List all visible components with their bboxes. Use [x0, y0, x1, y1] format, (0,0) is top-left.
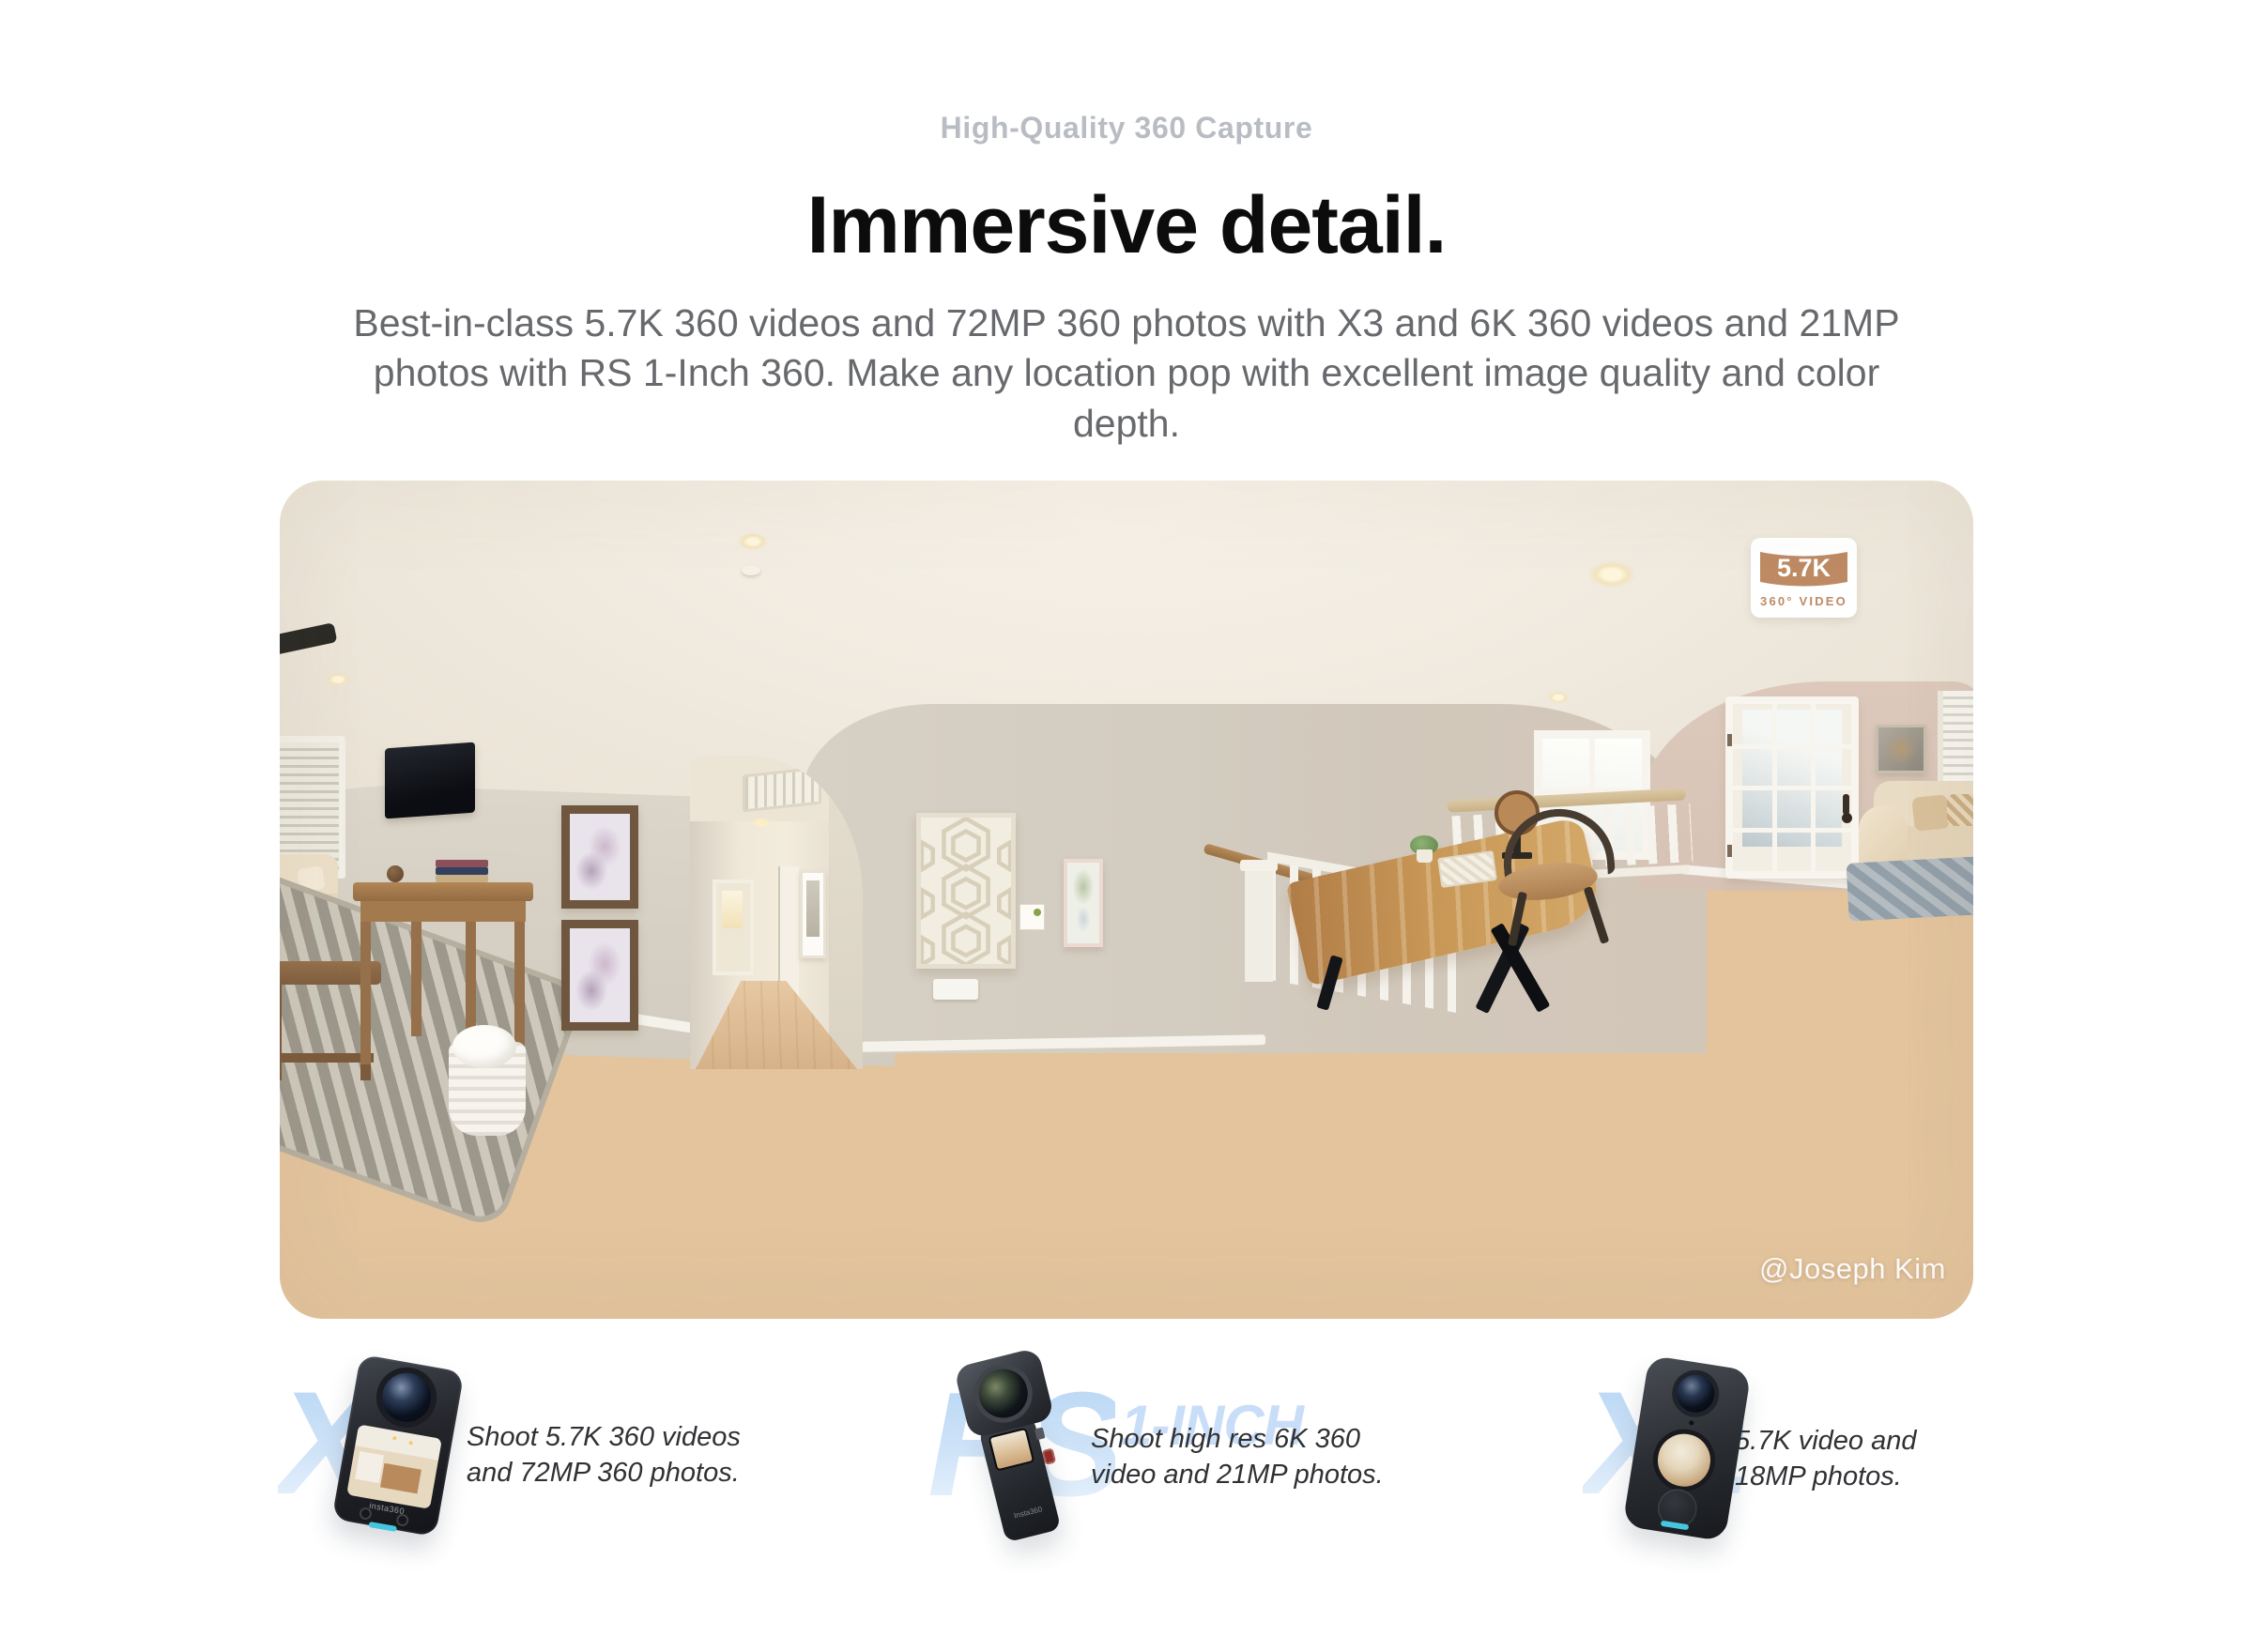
badge-type-label: 360° VIDEO	[1760, 594, 1847, 608]
badge-resolution-text: 5.7K	[1777, 554, 1832, 582]
decor-orb	[387, 865, 404, 882]
product-rs-description: Shoot high res 6K 360 video and 21MP pho…	[1091, 1421, 1419, 1493]
window-blinds	[280, 742, 339, 872]
light-switch-plate	[933, 979, 978, 1000]
screen-preview	[355, 1451, 384, 1483]
hallway	[690, 756, 863, 1069]
record-button	[1042, 1448, 1057, 1465]
blanket-basket	[449, 1042, 526, 1136]
far-room-window	[722, 891, 743, 928]
door-glass	[1742, 710, 1842, 847]
screen-preview	[380, 1463, 421, 1494]
hallway-side-wall	[829, 784, 863, 1069]
sofa-pillow	[1947, 794, 1973, 826]
resolution-badge: 5.7K 360° VIDEO	[1751, 538, 1857, 618]
product-rs-1-inch: RS 1-INCH Insta360 Shoot high res 6K 360…	[920, 1342, 1446, 1624]
eyebrow-label: High-Quality 360 Capture	[0, 111, 2253, 145]
photo-credit: @Joseph Kim	[1759, 1252, 1946, 1286]
camera-screen	[346, 1424, 442, 1508]
product-x3: X3 insta360 Shoot 5.7K 360 videos and 72…	[272, 1342, 798, 1624]
recessed-light	[1543, 689, 1573, 706]
recessed-light	[321, 670, 355, 689]
throw-blanket	[452, 1025, 516, 1068]
door-muntin	[1733, 786, 1851, 790]
hallway-art-frame	[800, 870, 826, 958]
hero-360-panorama: 5.7K 360° VIDEO @Joseph Kim	[280, 481, 1973, 1319]
hexagon-wall-art	[916, 813, 1016, 969]
console-leg	[360, 922, 371, 1064]
framed-floral-art-top	[561, 805, 638, 909]
door-knob	[1842, 813, 1852, 823]
far-room-doorway	[713, 880, 754, 975]
section-description: Best-in-class 5.7K 360 videos and 72MP 3…	[338, 298, 1915, 449]
console-leg	[411, 922, 421, 1036]
door-muntin	[1733, 744, 1851, 749]
console-leg	[466, 922, 476, 1036]
recessed-light	[1579, 556, 1645, 593]
smoke-detector	[742, 565, 760, 575]
framed-floral-art-bottom	[561, 920, 638, 1031]
entry-wall-art	[1876, 725, 1926, 773]
side-latch	[1035, 1427, 1046, 1440]
door-handle	[1843, 794, 1849, 815]
book-stack	[436, 860, 488, 882]
console-top	[353, 882, 533, 901]
recessed-light	[732, 529, 774, 554]
door-muntin	[1733, 828, 1851, 833]
hallway-light	[748, 816, 774, 830]
framed-vase-art	[1064, 859, 1103, 947]
door-hinge	[1727, 845, 1732, 857]
console-apron	[360, 901, 526, 922]
entry-door	[1725, 696, 1859, 879]
door-hinge	[1727, 734, 1732, 746]
entry-rug	[1846, 856, 1973, 921]
table-leg	[280, 985, 282, 1080]
section-header: High-Quality 360 Capture Immersive detai…	[0, 0, 2253, 449]
page-title: Immersive detail.	[0, 179, 2253, 272]
product-x2: X2 5.7K video and 18MP photos.	[1577, 1342, 2103, 1624]
hexagon-pattern	[921, 818, 1011, 964]
plant-pot	[1417, 849, 1433, 863]
sofa-pillow	[1911, 794, 1951, 832]
newel-post	[1245, 867, 1273, 982]
product-x2-description: 5.7K video and 18MP photos.	[1735, 1423, 1979, 1495]
curved-screen-icon: 5.7K	[1758, 545, 1849, 592]
product-x3-description: Shoot 5.7K 360 videos and 72MP 360 photo…	[467, 1419, 748, 1491]
immersive-detail-section: High-Quality 360 Capture Immersive detai…	[0, 0, 2253, 1652]
wall-plaque	[1019, 904, 1045, 930]
wall-mounted-tv	[385, 742, 475, 819]
